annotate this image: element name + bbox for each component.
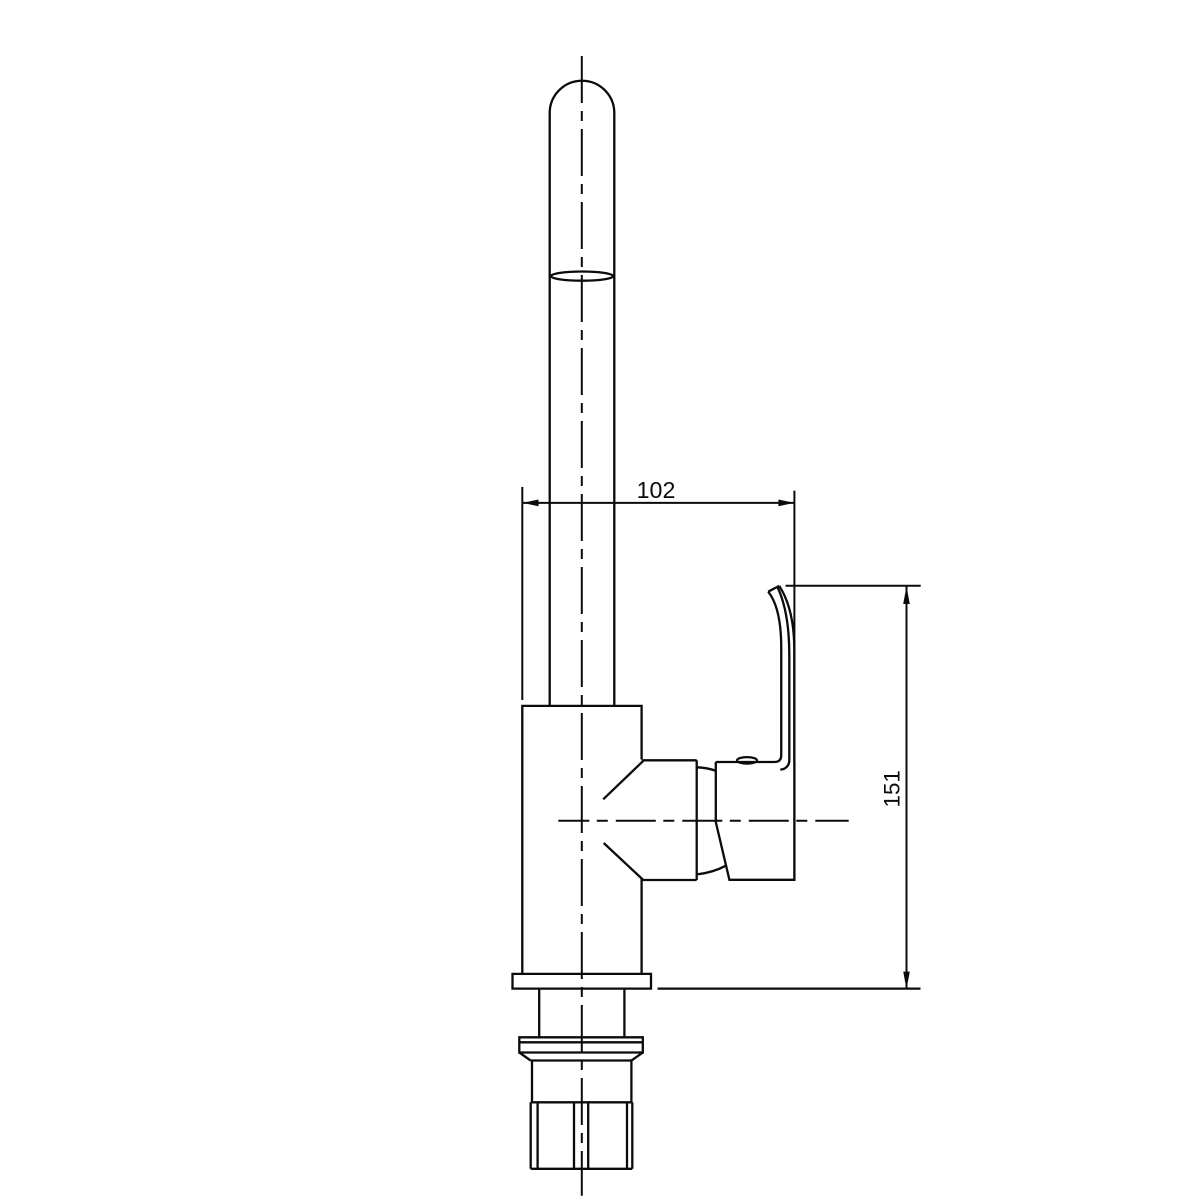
svg-text:151: 151 (880, 770, 905, 807)
svg-text:102: 102 (637, 477, 676, 503)
